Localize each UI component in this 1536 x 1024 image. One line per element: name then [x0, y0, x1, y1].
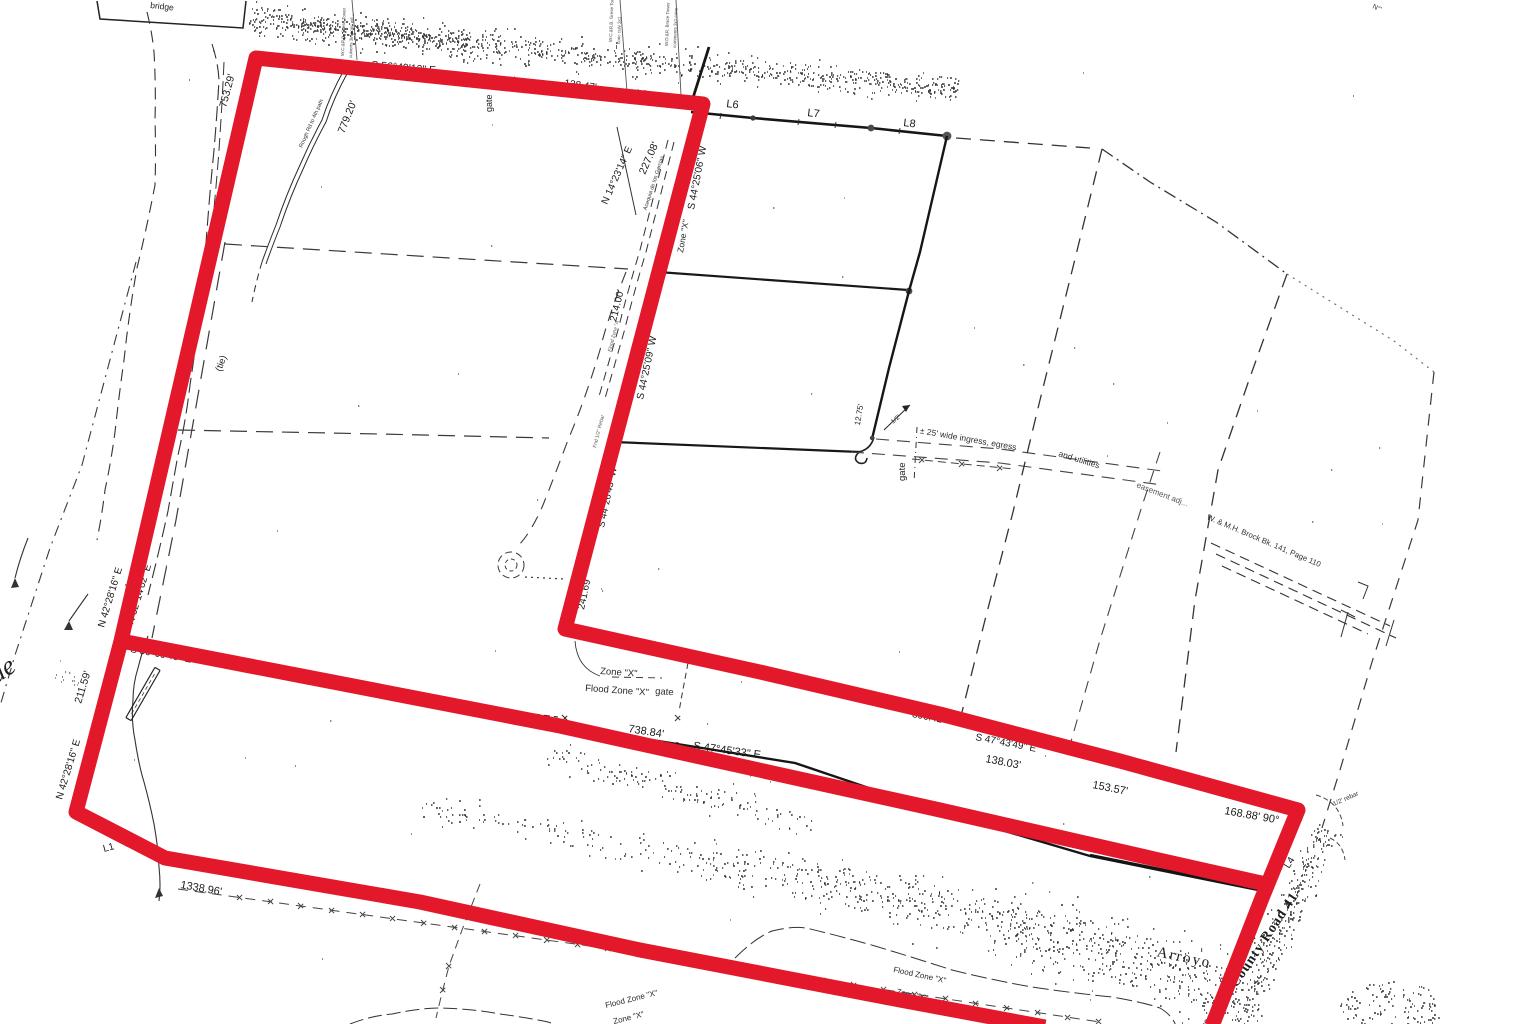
- svg-text:gate: gate: [655, 686, 674, 698]
- svg-text:L7: L7: [807, 107, 821, 120]
- svg-text:conc culv 3x1: conc culv 3x1: [616, 16, 622, 44]
- svg-text:L6: L6: [726, 98, 740, 111]
- svg-text:gate: gate: [897, 463, 908, 482]
- svg-text:L8: L8: [903, 117, 917, 130]
- svg-text:gate: gate: [484, 94, 494, 112]
